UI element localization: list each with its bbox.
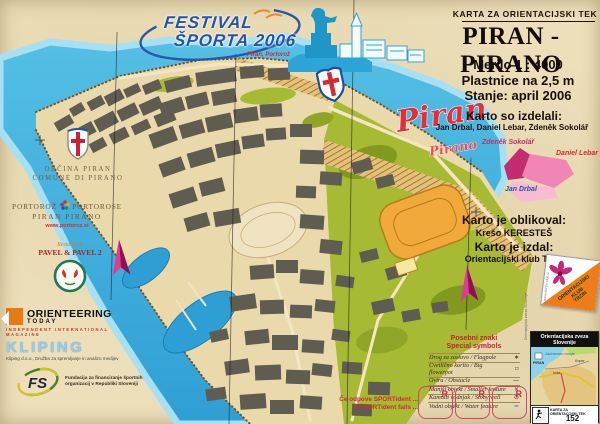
legend-title-en: Special symbols xyxy=(428,343,520,351)
ozs-sea-label: Jadransko morje xyxy=(545,351,575,356)
ozs-locator-map: Jadransko morje PIRAN Izola Koper xyxy=(531,347,598,405)
legend-row: Ovira / Obstacle— xyxy=(428,377,520,386)
ot-tagline: INDEPENDENT INTERNATIONAL MAGAZINE xyxy=(6,327,138,337)
pavel-restaurant-logo: Restaurant PAVEL & PAVEL 2 xyxy=(28,242,112,298)
ozs-place-koper: Koper xyxy=(575,359,585,363)
pavel-emblem-icon xyxy=(53,259,87,293)
festival-line2: ŠPORTA 2006 xyxy=(173,31,305,51)
fs-abbr: FS xyxy=(28,375,47,392)
obcina-line2: COMUNE DI PIRANO xyxy=(26,174,130,183)
orienteering-runner-icon xyxy=(532,407,549,424)
reserve-box-1: R xyxy=(418,386,453,419)
area-label-sokolar: Zdeněk Sokolář xyxy=(482,139,534,146)
kliping-logo: KLIPING Kliping d.o.o., Družba za spreml… xyxy=(6,339,156,361)
portoroz-name-it: PORTOROSE xyxy=(72,202,122,211)
scale-block: Merilo 1 : 4000 Plastnice na 2,5 m Stanj… xyxy=(438,57,598,104)
orienteering-map-poster: Piran Pirano KARTA ZA ORIENTACIJSKI TEK … xyxy=(0,0,600,424)
obstacle-symbol: — xyxy=(508,377,520,386)
ozs-side-text: Orientacijska zveza Slovenije xyxy=(524,293,528,340)
festival-sub: Piran, Portorož xyxy=(247,52,290,58)
map-scale: Merilo 1 : 4000 xyxy=(438,57,598,73)
fs-ellipse-icon: FS xyxy=(16,364,60,400)
reserve-box-3: R xyxy=(492,386,527,419)
ot-name: ORIENTEERING xyxy=(27,309,112,319)
piran-municipality-crest-icon xyxy=(66,128,90,160)
reserve-box-2: R xyxy=(455,386,490,419)
legend-row: Cvetlično korito / Big flowerpot▫ xyxy=(428,362,520,377)
kliping-name: KLIPING xyxy=(6,339,156,356)
festival-line1: FESTIVAL xyxy=(163,13,305,33)
authors-label: Karto so izdelali: xyxy=(430,109,598,123)
fs-text: Fundacija za financiranje športnih organ… xyxy=(65,376,147,388)
publisher-label: Karto je izdal: xyxy=(430,240,598,254)
ozs-map-number: 152 xyxy=(550,414,595,423)
ozs-index-box: Orientacijska zveza Slovenije Jadransko … xyxy=(530,331,599,423)
festival-sporta-logo: FESTIVAL ŠPORTA 2006 Piran, Portorož xyxy=(136,6,304,64)
ozs-place-piran: PIRAN xyxy=(533,361,544,365)
fs-foundation-logo: FS Fundacija za financiranje športnih or… xyxy=(16,364,156,400)
ozs-title: Orientacijska zveza Slovenije xyxy=(531,332,598,347)
designer-name: Krešo KERESTEŠ xyxy=(430,228,598,238)
orienteering-today-arrow-icon xyxy=(6,308,23,325)
portoroz-name-sl: PORTOROŽ xyxy=(12,202,57,211)
pavel-name: PAVEL & PAVEL 2 xyxy=(28,248,112,257)
obcina-line1: OBČINA PIRAN xyxy=(26,165,130,174)
ozs-footer: KARTA ZA ORIENTACIJSKI TEK 152 xyxy=(531,405,598,424)
area-label-lebar: Daniel Lebar xyxy=(556,150,598,157)
flagpole-symbol: ∗ xyxy=(508,354,520,363)
sportident-note: Če odpove SPORTident ... If SPORTident f… xyxy=(318,396,418,412)
area-label-drbal: Jan Drbal xyxy=(505,186,537,193)
kicker-rule xyxy=(462,21,595,22)
map-status: Stanje: april 2006 xyxy=(438,88,598,104)
obcina-piran-logo: OBČINA PIRAN COMUNE DI PIRANO xyxy=(26,128,130,183)
ozs-place-izola: Izola xyxy=(553,371,560,375)
map-kicker: KARTA ZA ORIENTACIJSKI TEK xyxy=(452,9,598,19)
legend-title-sl: Posebni znaki xyxy=(428,335,520,343)
portoroz-line2: PIRAN PIRANO xyxy=(4,212,130,221)
portoroz-flower-icon xyxy=(60,200,70,210)
authors-names: Jan Drbal, Daniel Lebar, Zdeněk Sokolář xyxy=(424,123,600,132)
contour-interval: Plastnice na 2,5 m xyxy=(438,73,598,89)
flowerpot-symbol: ▫ xyxy=(508,362,520,377)
legend-row: Drog za zastavo / Flagpole∗ xyxy=(428,354,520,363)
orienteering-today-logo: ORIENTEERING TODAY INDEPENDENT INTERNATI… xyxy=(6,308,138,337)
ok-trzin-logo: ORIENTACIJSKIKLUBTRZIN www.oktrzin-klub.… xyxy=(540,254,600,312)
designer-label: Karto je oblikoval: xyxy=(430,213,598,227)
contributor-areas-minimap xyxy=(478,136,598,208)
portoroz-url: www.portoroz.si xyxy=(4,223,130,229)
portoroz-logo: PORTOROŽ PORTOROSE PIRAN PIRANO www.port… xyxy=(4,200,130,229)
kliping-tagline: Kliping d.o.o., Družba za spremljanje in… xyxy=(6,356,156,361)
